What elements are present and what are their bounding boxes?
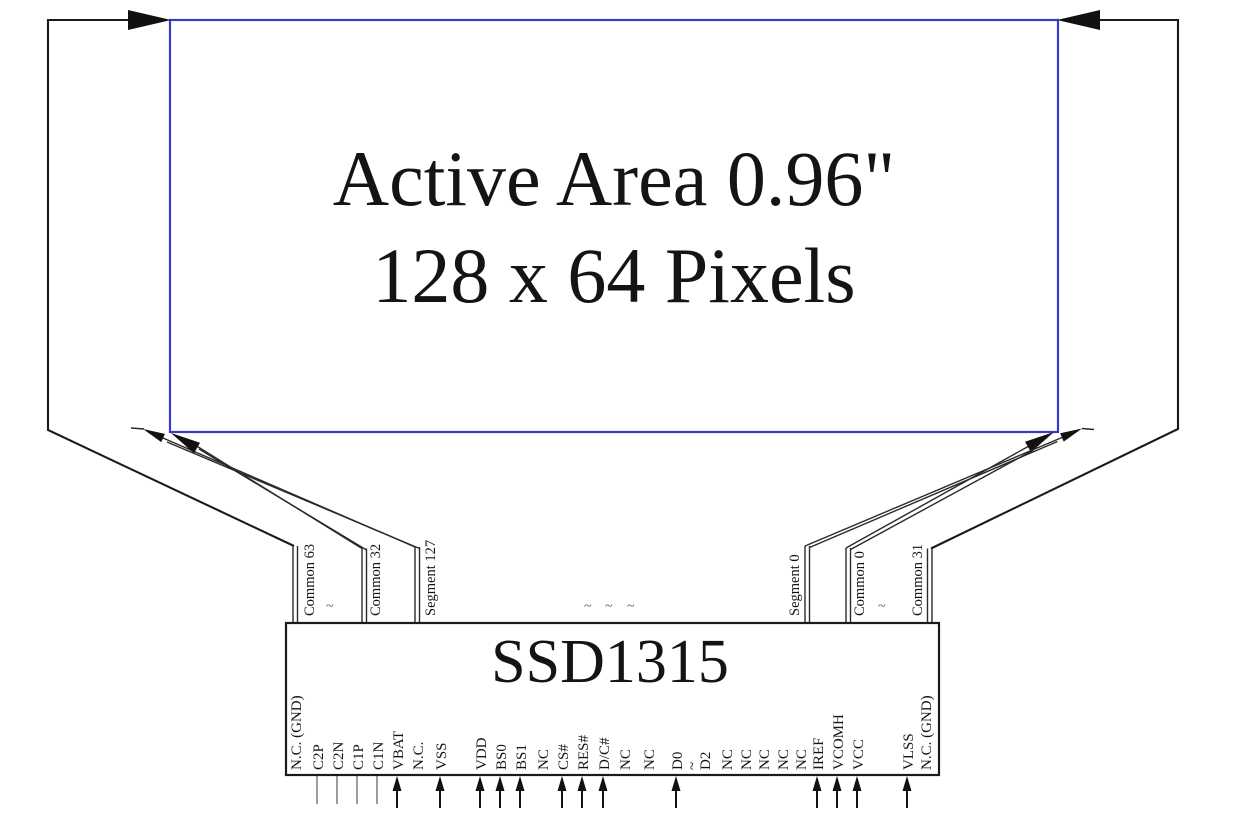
pin-input-arrow-icon [476, 776, 485, 791]
pin-label: VDD [474, 737, 490, 770]
pin-label: IREF [811, 737, 827, 770]
pin-label: D0 [670, 752, 686, 770]
active-area-resolution-text: 128 x 64 Pixels [372, 232, 855, 319]
pin-label: VCC [851, 739, 867, 770]
pin-label: D2 [698, 752, 714, 770]
pad-label: Segment 127 [423, 540, 439, 616]
pin-input-arrow-icon [496, 776, 505, 791]
common0-trace [846, 446, 1029, 548]
pin-label: VSS [434, 742, 450, 770]
pin-label: CS# [556, 744, 572, 770]
pin-label: RES# [576, 734, 592, 770]
common32-trace-2 [199, 449, 367, 550]
pin-input-arrow-icon [578, 776, 587, 791]
pin-input-arrow-icon [813, 776, 822, 791]
top-pads-right-group: Segment 0Common 0~Common 31 [787, 544, 932, 622]
pin-label: VCOMH [831, 714, 847, 770]
pin-input-arrow-icon [833, 776, 842, 791]
pad-ellipsis-mark: ~ [326, 599, 334, 614]
pin-label: NC [757, 749, 773, 770]
active-area-size-text: Active Area 0.96" [333, 135, 896, 222]
pin-label: VBAT [391, 731, 407, 770]
pin-input-arrow-icon [672, 776, 681, 791]
pin-label: VLSS [901, 733, 917, 770]
pin-input-arrow-icon [903, 776, 912, 791]
driver-ic-name: SSD1315 [491, 628, 729, 696]
pin-input-arrow-icon [558, 776, 567, 791]
pad-label: Common 63 [302, 544, 318, 616]
oled-module-outline-diagram: Active Area 0.96" 128 x 64 Pixels SSD131… [0, 0, 1238, 824]
pad-label: Segment 0 [787, 554, 803, 616]
pin-label: NC [618, 749, 634, 770]
pin-label: N.C. (GND) [919, 695, 935, 770]
segment0-trace-tail [1082, 429, 1094, 430]
pin-label: NC [536, 749, 552, 770]
segment-ellipsis-mark: ~ [605, 599, 613, 614]
pin-label: NC [642, 749, 658, 770]
pin-input-arrow-icon [853, 776, 862, 791]
segment0-trace [805, 438, 1062, 547]
pad-label: Common 32 [368, 544, 384, 616]
pad-ellipsis-mark: ~ [878, 599, 886, 614]
pin-label: NC [720, 749, 736, 770]
pin-label: C2P [311, 744, 327, 770]
pad-label: Common 0 [852, 551, 868, 616]
common0-trace-2 [851, 450, 1034, 550]
pin-label: D/C# [597, 737, 613, 770]
segment127-trace-2 [167, 442, 420, 549]
pin-label: C1N [371, 741, 387, 770]
pin-label: C2N [331, 741, 347, 770]
segment0-trace-2 [810, 442, 1058, 548]
segment127-arrow-icon [143, 429, 165, 442]
pin-input-arrow-icon [436, 776, 445, 791]
pin-label: NC [794, 749, 810, 770]
pin-label: N.C. [411, 742, 427, 770]
segment-ellipsis-mark: ~ [584, 599, 592, 614]
segment-ellipsis-mark: ~ [627, 599, 635, 614]
pin-label: C1P [351, 744, 367, 770]
pin-label: NC [739, 749, 755, 770]
pin-label: BS0 [494, 744, 510, 770]
diagram-canvas: Active Area 0.96" 128 x 64 Pixels SSD131… [0, 0, 1238, 824]
com-route-right-arrow-icon [1057, 10, 1100, 30]
pin-input-arrow-icon [516, 776, 525, 791]
segment-ellipsis-group: ~~~ [584, 599, 635, 614]
pin-label: NC [776, 749, 792, 770]
pad-label: Common 31 [910, 544, 926, 616]
pin-label: BS1 [514, 744, 530, 770]
com-route-left-arrow-icon [128, 10, 171, 30]
pin-label: N.C. (GND) [289, 695, 305, 770]
pin-input-arrow-icon [393, 776, 402, 791]
top-pads-left-group: Common 63~Common 32Segment 127 [293, 540, 439, 622]
segment127-trace-tail [131, 428, 144, 429]
segment0-arrow-icon [1060, 429, 1082, 442]
com-route-right [931, 20, 1178, 549]
active-area-outline [170, 20, 1058, 432]
pin-input-arrow-icon [599, 776, 608, 791]
